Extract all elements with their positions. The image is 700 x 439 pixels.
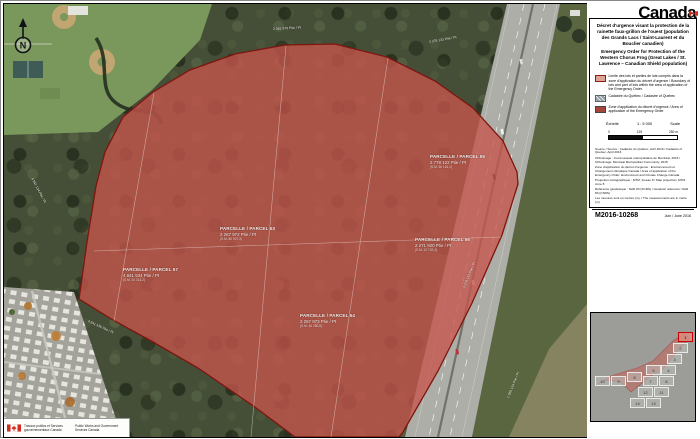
legend: Limite des lots et parties de lots compr… (592, 72, 694, 116)
zone-swatch-icon (595, 106, 606, 113)
sheet-index-tile: 8 (627, 372, 642, 382)
lot-measurement-label: 4 841 536 Ptie / Pt (87, 319, 114, 334)
scale-block: Échelle 1 : 5 000 Scale 0 125 250 m (606, 121, 680, 146)
source-notes: Source / Source : Cadastre du Québec, Av… (595, 148, 691, 207)
lot-measurement-label: 1 980 134 Ptie / Pt (506, 371, 520, 398)
government-credits: Travaux publics et Services gouvernement… (4, 418, 130, 437)
sheet-index-tile: 3 (667, 354, 682, 364)
map-title-fr: Décret d'urgence visant la protection de… (596, 23, 690, 47)
lot-measurement-label: 3 378 133 Ptie / Pt (429, 35, 457, 44)
scale-ratio: 1 : 5 000 (637, 121, 652, 126)
sheet-index-tile: 10 (595, 376, 610, 386)
sheet-index-tile: 4 (661, 365, 676, 375)
map-canvas: PARCELLE / PARCEL 552 778 122 Ptie / Pt(… (3, 3, 588, 438)
sheet-index-inset: 1235410987612111413 (590, 312, 696, 422)
cadastre-swatch-icon (595, 95, 606, 102)
north-arrow-icon: N (11, 17, 35, 55)
sheet-index-tile: 2 (673, 343, 688, 353)
map-sheet: { "wordmark": { "text": "Canada" }, "pan… (0, 0, 700, 438)
credit-fr: Travaux publics et Services gouvernement… (24, 424, 72, 432)
sheet-index-tile: 1 (678, 332, 693, 342)
sheet-index-tiles: 1235410987612111413 (591, 313, 695, 421)
legend-item-cadastre: Cadastre du Québec / Cadastre of Quebec (595, 94, 691, 102)
lot-measurement-label: 4 841 134 Ptie / Pt (30, 177, 47, 204)
scale-label-en: Scale (670, 121, 680, 126)
sheet-index-tile: 6 (659, 376, 674, 386)
sheet-index-tile: 5 (646, 365, 661, 375)
map-number: M2016-10268 (595, 212, 638, 219)
boundary-swatch-icon (595, 75, 606, 82)
lot-measurement-label: 3 378 132 Ptie / Pt (462, 261, 476, 288)
legend-item-boundary: Limite des lots et parties de lots compr… (595, 74, 691, 92)
svg-text:N: N (20, 41, 27, 51)
title-block-panel: Canada Décret d'urgence visant la protec… (587, 1, 700, 439)
scale-bar (608, 135, 678, 140)
sheet-index-tile: 11 (654, 387, 669, 397)
canada-flag-icon (7, 424, 21, 432)
edge-labels: 2 381 979 Ptie / Pt3 378 133 Ptie / Pt4 … (4, 4, 587, 437)
credit-en: Public Works and Government Services Can… (75, 424, 123, 432)
map-title-en: Emergency Order for Protection of the We… (596, 49, 690, 67)
sheet-index-tile: 13 (646, 398, 661, 408)
legend-item-zone: Zone d'application du décret d'urgence /… (595, 105, 691, 114)
sheet-index-tile: 12 (638, 387, 653, 397)
sheet-index-tile: 14 (630, 398, 645, 408)
scale-label-fr: Échelle (606, 121, 619, 126)
sheet-index-tile: 7 (643, 376, 658, 386)
sheet-index-tile: 9 (611, 376, 626, 386)
map-date: Juin / June 2016 (665, 214, 691, 218)
lot-measurement-label: 2 381 979 Ptie / Pt (273, 26, 301, 31)
title-legend-box: Décret d'urgence visant la protection de… (589, 18, 697, 208)
map-number-row: M2016-10268 Juin / June 2016 (592, 209, 694, 221)
